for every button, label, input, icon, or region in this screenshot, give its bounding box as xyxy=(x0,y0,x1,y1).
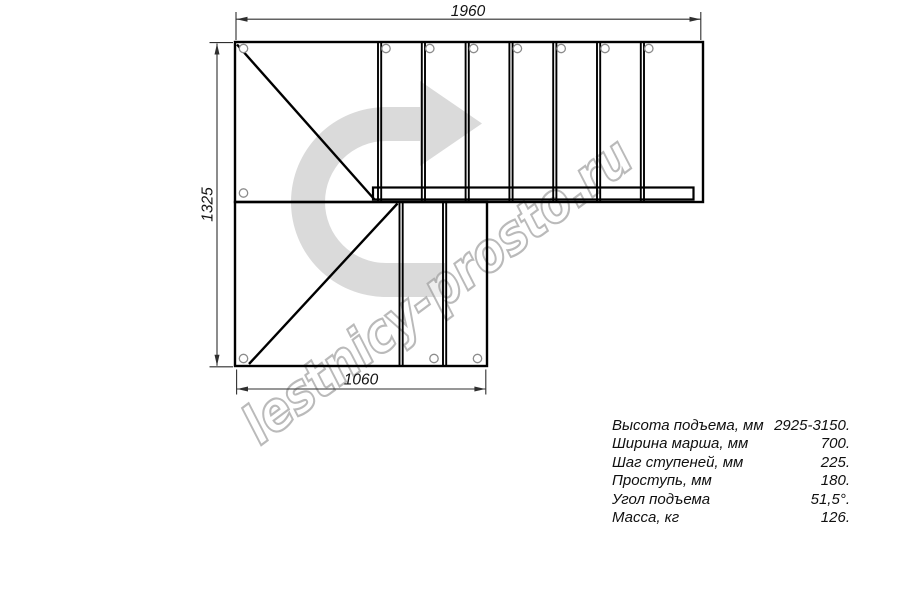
spec-value: 51,5°. xyxy=(811,491,850,509)
dim-arrow-left xyxy=(237,17,248,22)
spec-value: 225. xyxy=(821,454,850,472)
watermark-text: lestnicy-prosto.ru xyxy=(230,124,644,456)
dimension-bottom-value: 1060 xyxy=(344,371,379,388)
spec-label: Ширина марша, мм xyxy=(612,435,748,453)
spec-label: Масса, кг xyxy=(612,509,679,527)
spec-value: 180. xyxy=(821,472,850,490)
spec-row-flight-width: Ширина марша, мм 700. xyxy=(612,435,850,453)
spec-label: Высота подъема, мм xyxy=(612,417,764,435)
dim-arrow-right xyxy=(474,387,485,392)
stair-plan-page: lestnicy-prosto.ru xyxy=(0,0,900,600)
spec-row-tread: Проступь, мм 180. xyxy=(612,472,850,490)
dimension-top-value: 1960 xyxy=(451,3,486,20)
spec-label: Проступь, мм xyxy=(612,472,712,490)
spec-value: 2925-3150. xyxy=(774,417,850,435)
spec-label: Угол подъема xyxy=(612,491,710,509)
spec-table: Высота подъема, мм 2925-3150. Ширина мар… xyxy=(612,417,850,527)
spec-row-height: Высота подъема, мм 2925-3150. xyxy=(612,417,850,435)
dim-arrow-down xyxy=(215,355,220,366)
dim-arrow-right xyxy=(690,17,701,22)
spec-row-step-rise: Шаг ступеней, мм 225. xyxy=(612,454,850,472)
spec-label: Шаг ступеней, мм xyxy=(612,454,743,472)
spec-value: 700. xyxy=(821,435,850,453)
dim-arrow-up xyxy=(215,44,220,55)
dim-arrow-left xyxy=(237,387,248,392)
spec-value: 126. xyxy=(821,509,850,527)
spec-row-mass: Масса, кг 126. xyxy=(612,509,850,527)
dimension-left-value: 1325 xyxy=(200,187,217,222)
spec-row-angle: Угол подъема 51,5°. xyxy=(612,491,850,509)
